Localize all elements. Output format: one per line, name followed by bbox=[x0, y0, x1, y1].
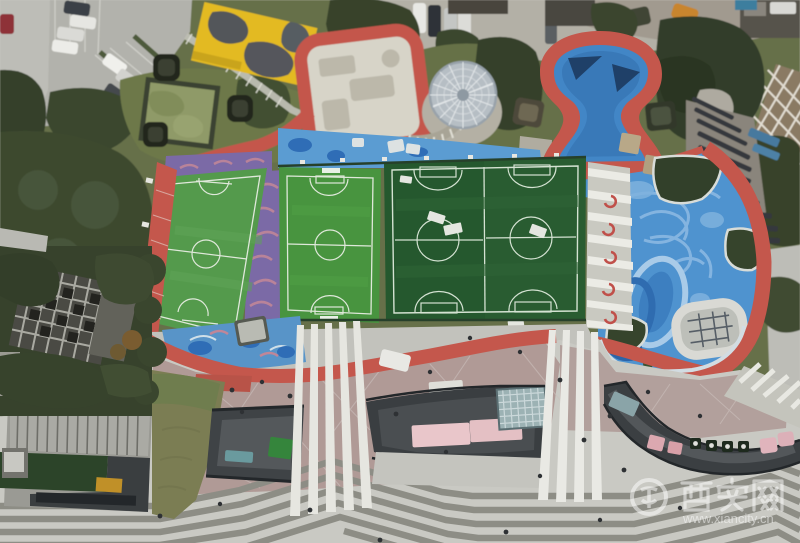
svg-text:www.xiancity.cn: www.xiancity.cn bbox=[682, 511, 774, 526]
